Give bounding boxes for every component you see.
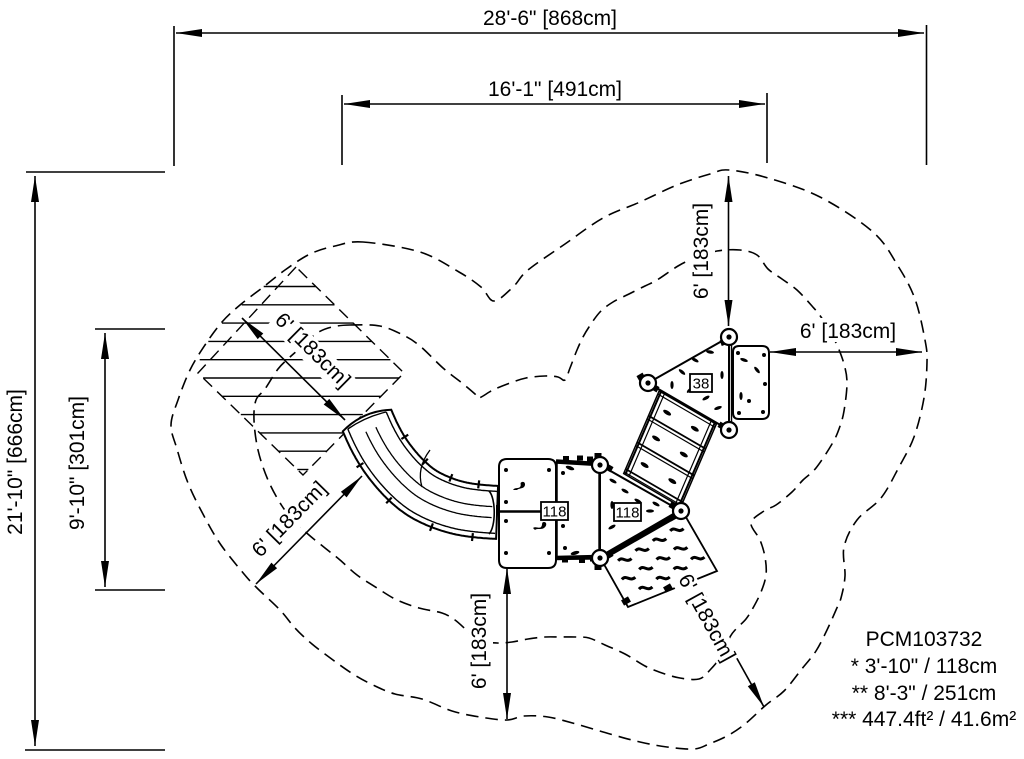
- svg-text:21'-10" [666cm]: 21'-10" [666cm]: [4, 389, 27, 535]
- svg-text:* 3'-10" / 118cm: * 3'-10" / 118cm: [851, 655, 997, 678]
- svg-text:118: 118: [543, 504, 567, 521]
- svg-text:*** 447.4ft² / 41.6m²: *** 447.4ft² / 41.6m²: [832, 708, 1016, 731]
- svg-text:** 8'-3" / 251cm: ** 8'-3" / 251cm: [852, 682, 997, 705]
- svg-text:9'-10" [301cm]: 9'-10" [301cm]: [66, 396, 89, 530]
- svg-text:6' [183cm]: 6' [183cm]: [800, 320, 896, 343]
- svg-text:6' [183cm]: 6' [183cm]: [690, 203, 713, 299]
- svg-text:16'-1" [491cm]: 16'-1" [491cm]: [488, 78, 622, 101]
- svg-text:PCM103732: PCM103732: [866, 628, 983, 651]
- svg-text:6' [183cm]: 6' [183cm]: [468, 593, 491, 689]
- svg-text:28'-6" [868cm]: 28'-6" [868cm]: [483, 7, 617, 30]
- svg-text:38: 38: [693, 376, 710, 393]
- svg-text:118: 118: [616, 505, 640, 522]
